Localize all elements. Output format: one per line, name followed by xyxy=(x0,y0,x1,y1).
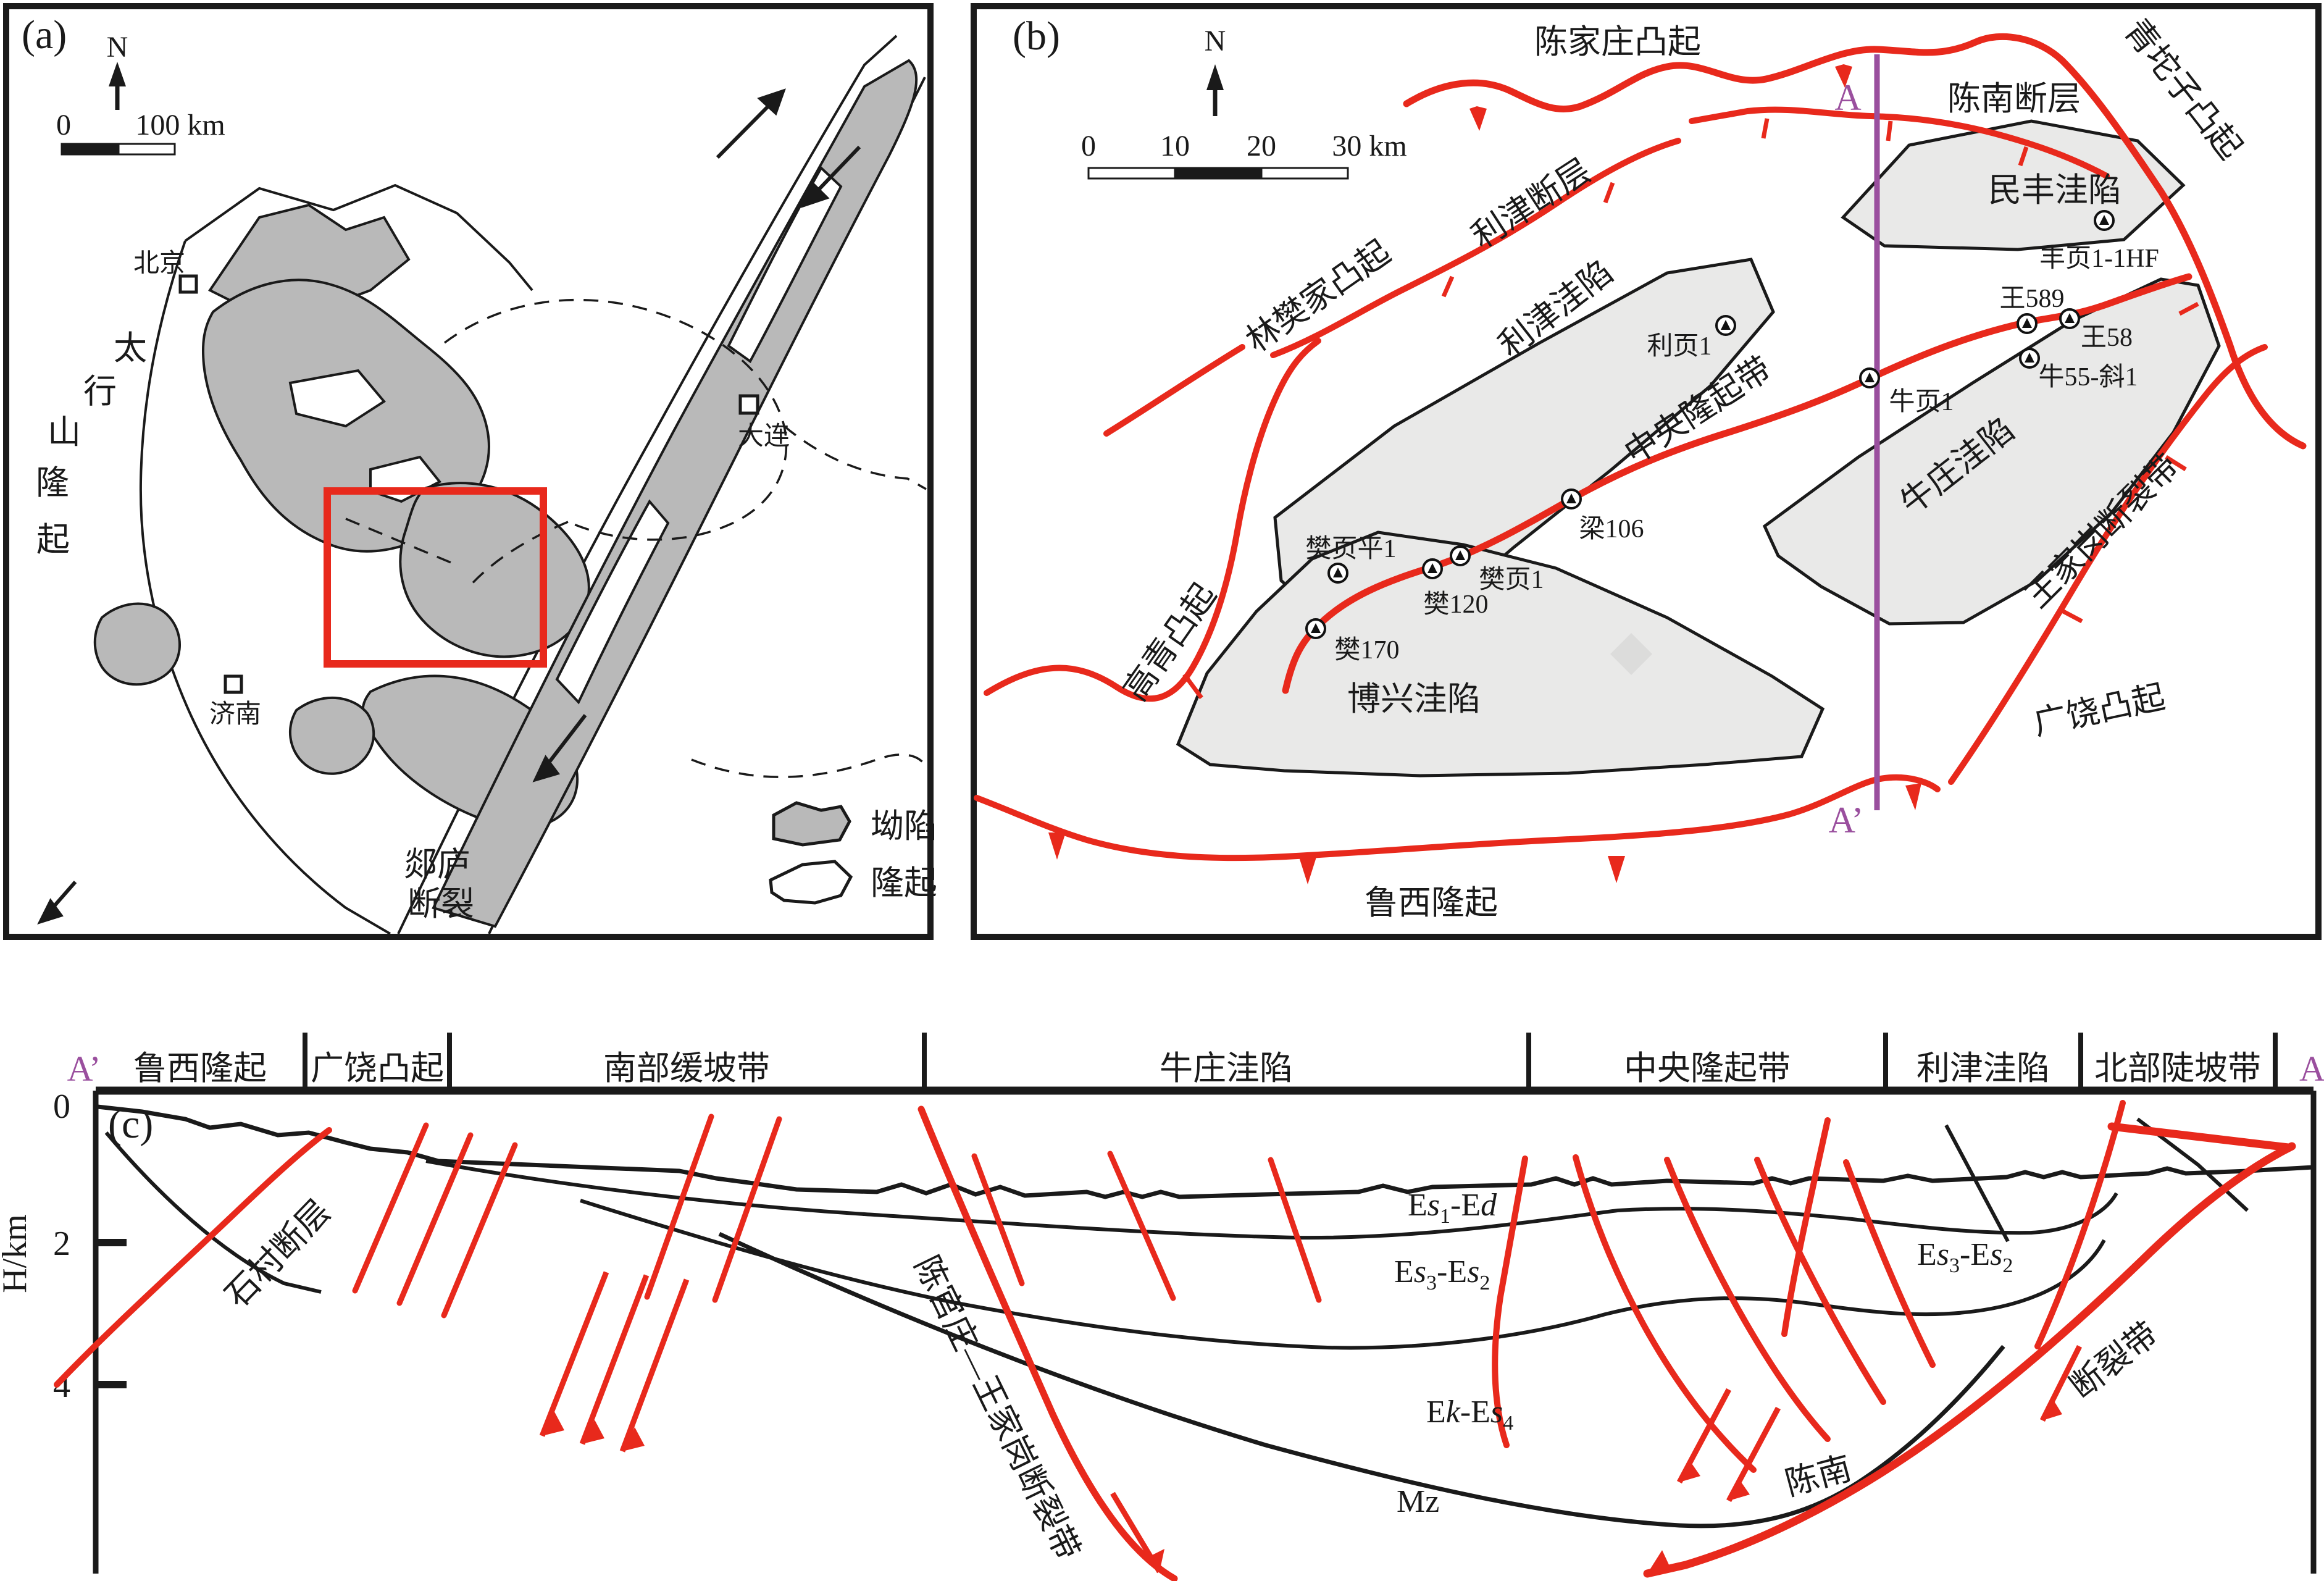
scale-b-20: 20 xyxy=(1247,130,1276,162)
south-boundary-fault-line xyxy=(977,778,1937,858)
well-label-niuye1: 牛页1 xyxy=(1889,388,1954,416)
strata-mz: Mz xyxy=(1397,1484,1439,1519)
zone-south-slope: 南部缓坡带 xyxy=(603,1050,770,1087)
dalian-label: 大连 xyxy=(738,422,790,451)
chennan-fault-sole xyxy=(2112,1126,2288,1147)
well-label-niu55: 牛55-斜1 xyxy=(2039,363,2138,392)
scale-b-30km: 30 km xyxy=(1332,130,1407,162)
panel-a: N 0 100 km 北京 济南 大连 太 行 山 隆 起 郯庐 xyxy=(6,6,937,937)
well-symbol-fan170 xyxy=(1306,619,1325,638)
zone-lijin: 利津洼陷 xyxy=(1916,1050,2050,1087)
taihang-char-3: 隆 xyxy=(36,464,69,501)
section-point-a: A xyxy=(1834,77,1861,118)
figure-canvas: N 0 100 km 北京 济南 大连 太 行 山 隆 起 郯庐 xyxy=(0,0,2324,1581)
duanliedai-label: 断裂带 xyxy=(2063,1315,2165,1406)
section-a-label: A xyxy=(2299,1049,2324,1089)
axis-2: 2 xyxy=(53,1225,70,1263)
guangrao-label: 广饶凸起 xyxy=(2030,678,2168,742)
boxing-label: 博兴洼陷 xyxy=(1347,681,1481,718)
linfanjia-fault-line xyxy=(1106,347,1242,434)
legend-a: 坳陷 隆起 xyxy=(771,803,937,903)
scale-b-10: 10 xyxy=(1160,130,1190,162)
zone-central-uplift: 中央隆起带 xyxy=(1624,1050,1791,1087)
well-label-wang58: 王58 xyxy=(2081,324,2133,352)
well-symbol-niu55 xyxy=(2020,349,2039,367)
tanlu-line-0: 郯庐 xyxy=(404,846,470,883)
section-a-prime-label: A’ xyxy=(67,1049,101,1089)
well-symbol-fengye xyxy=(2095,211,2113,230)
taihang-char-2: 山 xyxy=(48,414,81,451)
chennan-fault-branch xyxy=(2038,1103,2123,1346)
panel-a-tag: (a) xyxy=(22,12,67,57)
panel-b-tag: (b) xyxy=(1013,14,1060,59)
well-symbol-liang106 xyxy=(1562,490,1581,508)
ground-surface xyxy=(98,1107,2314,1197)
scalebar-a: 0 100 km xyxy=(56,109,225,154)
well-label-fengye: 丰页1-1HF xyxy=(2039,245,2159,273)
zone-north-slope: 北部陡坡带 xyxy=(2094,1050,2261,1087)
well-symbol-fan120 xyxy=(1423,560,1442,578)
black-fault-lijin xyxy=(1946,1125,2008,1241)
well-label-fan120: 樊120 xyxy=(1423,590,1488,619)
taihang-uplift-label: 太 行 山 隆 起 xyxy=(36,330,147,558)
beijing-marker xyxy=(180,276,196,292)
section-point-a-prime: A’ xyxy=(1829,800,1864,841)
strata-ek-es4: Ek-Es4 xyxy=(1426,1394,1513,1435)
legend-label-depression: 坳陷 xyxy=(871,808,937,845)
legend-label-uplift: 隆起 xyxy=(871,865,937,902)
zone-niuzhuang: 牛庄洼陷 xyxy=(1160,1050,1293,1087)
well-symbol-fanyeping1 xyxy=(1329,564,1347,582)
well-symbol-wang58 xyxy=(2060,309,2079,328)
jinan-label: 济南 xyxy=(209,700,261,729)
strata-es3-es2: Es3-Es2 xyxy=(1394,1254,1490,1294)
zone-guangrao: 广饶凸起 xyxy=(311,1050,444,1087)
north-arrowhead-a xyxy=(109,62,126,86)
well-label-liye1: 利页1 xyxy=(1647,332,1712,361)
well-label-fanyeping1: 樊页平1 xyxy=(1305,535,1396,563)
north-label-a: N xyxy=(107,31,128,64)
chennan-fault-label: 陈南断层 xyxy=(1947,80,2081,117)
panel-c-tag: (c) xyxy=(108,1102,153,1147)
panel-b: A A’ N 0 10 20 30 km 陈家庄凸起 陈南断层 青坨子凸起 民丰… xyxy=(974,6,2318,937)
axis-title: H/km xyxy=(0,1214,34,1293)
tanlu-line-1: 断裂 xyxy=(408,886,474,923)
well-symbol-niuye1 xyxy=(1860,369,1879,387)
taihang-char-1: 行 xyxy=(83,373,117,410)
well-label-liang106: 梁106 xyxy=(1579,515,1644,543)
mifeng-label: 民丰洼陷 xyxy=(1988,172,2121,209)
jinan-marker xyxy=(225,676,241,692)
well-symbol-wang589 xyxy=(2018,314,2036,333)
well-label-fanye1: 樊页1 xyxy=(1479,566,1544,594)
dalian-marker xyxy=(740,396,758,413)
scale-b-0: 0 xyxy=(1081,130,1096,162)
legend-swatch-depression xyxy=(774,803,850,845)
scale-a-0: 0 xyxy=(56,109,71,141)
scalebar-b: 0 10 20 30 km xyxy=(1081,130,1407,178)
well-label-fan170: 樊170 xyxy=(1334,636,1399,665)
legend-swatch-uplift xyxy=(771,862,851,903)
chenjiazhuang-label: 陈家庄凸起 xyxy=(1534,23,1701,61)
chenguanzhuang-fault-label: 陈官庄—王家岗断裂带 xyxy=(908,1250,1087,1566)
strata-es1-ed: Es1-Ed xyxy=(1408,1188,1497,1228)
taihang-char-4: 起 xyxy=(36,521,70,558)
axis-0: 0 xyxy=(53,1088,70,1126)
lijin-fault-label: 利津断层 xyxy=(1465,152,1597,256)
section-horizons xyxy=(98,1107,2314,1526)
strata-es3-es2-right: Es3-Es2 xyxy=(1917,1237,2013,1277)
north-label-b: N xyxy=(1205,25,1226,57)
taihang-char-0: 太 xyxy=(114,330,147,367)
north-arrowhead-b xyxy=(1206,64,1224,90)
panel-c: 0 2 4 H/km A’ 鲁西隆起 广饶凸起 南部缓坡带 牛庄洼陷 中央隆起带… xyxy=(0,1033,2324,1579)
luxi-label: 鲁西隆起 xyxy=(1365,884,1498,921)
zone-luxi: 鲁西隆起 xyxy=(133,1050,267,1087)
scale-a-100km: 100 km xyxy=(135,109,225,141)
well-symbol-liye1 xyxy=(1716,316,1735,335)
well-label-wang589: 王589 xyxy=(1999,285,2064,313)
panel-b-sags xyxy=(1178,121,2219,776)
well-symbol-fanye1 xyxy=(1451,547,1469,565)
section-faults xyxy=(57,1103,2292,1579)
section-slip-arrows xyxy=(542,1272,2079,1574)
beijing-label: 北京 xyxy=(133,249,185,278)
